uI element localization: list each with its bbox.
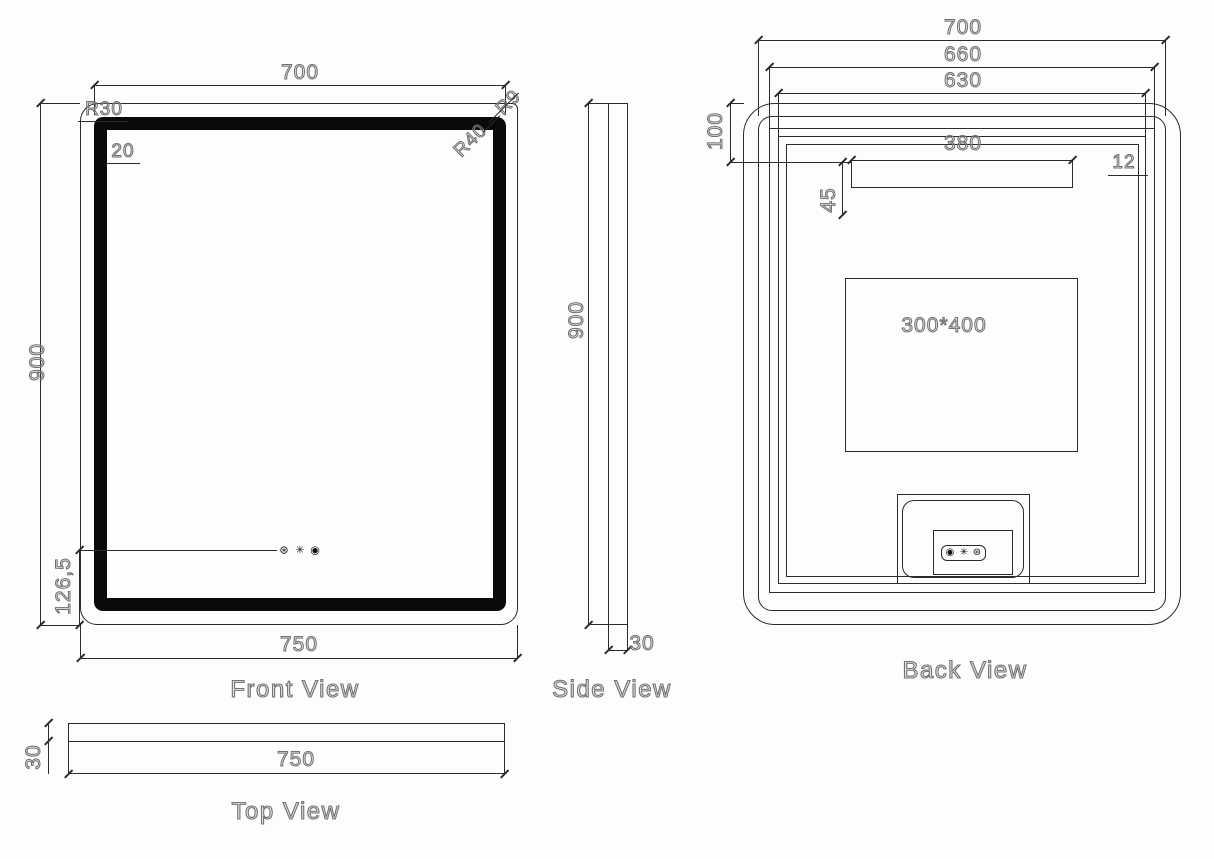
front-button-offset-dim: 126,5 (52, 557, 76, 615)
front-border-width-dim: 20 (111, 141, 134, 163)
dimension-line (80, 658, 518, 659)
dimension-line (48, 723, 49, 774)
hanging-bracket-strip (851, 160, 1073, 188)
top-glass-split-line (68, 741, 505, 742)
dimension-line (769, 67, 1155, 68)
light-connector-icon: ⊛ (973, 548, 981, 558)
front-bottom-width-dim: 750 (280, 633, 318, 657)
leader-line (1108, 175, 1148, 176)
front-top-width-dim: 700 (281, 61, 319, 85)
dimension-line (79, 550, 80, 625)
extension-line (778, 93, 779, 136)
dimension-line (842, 162, 843, 215)
top-width-dim: 750 (277, 748, 315, 772)
top-view-label: Top View (232, 798, 341, 826)
edge-gap-dim: 12 (1112, 152, 1135, 174)
front-radius-outer-note: R30 (85, 99, 123, 121)
top-thickness-dim: 30 (22, 744, 46, 769)
extension-line (730, 103, 744, 104)
light-toggle-icon[interactable]: ⊛ (279, 546, 288, 557)
bracket-width-dim: 380 (944, 132, 982, 156)
defog-connector-icon: ✳ (960, 548, 968, 558)
side-view-label: Side View (552, 676, 672, 704)
extension-line (1145, 93, 1146, 136)
power-connector-icon: ◉ (946, 548, 955, 558)
extension-line (80, 625, 81, 658)
technical-drawing-canvas: 700 R30 R9 R40 20 900 ⊛ ✳ ◉ 126,5 (0, 0, 1214, 859)
leader-line (79, 550, 277, 551)
dimension-line (94, 85, 506, 86)
extension-line (769, 67, 770, 128)
dimension-line (778, 93, 1146, 94)
extension-line (40, 625, 80, 626)
back-top-offset-dim: 100 (704, 112, 728, 150)
back-view-label: Back View (902, 657, 1027, 685)
extension-line (1154, 67, 1155, 128)
bracket-offset-dim: 45 (817, 187, 841, 212)
front-led-frame (94, 117, 506, 611)
side-height-dim: 900 (565, 301, 589, 339)
demister-pad (845, 278, 1078, 452)
leader-line (106, 163, 140, 164)
front-height-dim: 900 (26, 343, 50, 381)
back-width-660-dim: 660 (944, 43, 982, 67)
front-view-label: Front View (230, 676, 359, 704)
demister-size-label: 300*400 (901, 314, 986, 338)
leader-line (78, 121, 128, 122)
dimension-line (758, 40, 1166, 41)
dimension-line (730, 103, 731, 162)
side-glass-split-line (608, 103, 609, 625)
side-thickness-dim: 30 (629, 632, 654, 656)
defog-toggle-icon[interactable]: ✳ (295, 546, 304, 557)
extension-line (758, 40, 759, 116)
extension-line (517, 625, 518, 658)
extension-line (40, 103, 80, 104)
back-width-630-dim: 630 (944, 69, 982, 93)
back-width-700-dim: 700 (944, 16, 982, 40)
power-toggle-icon[interactable]: ◉ (310, 546, 320, 557)
extension-line (730, 162, 851, 163)
extension-line (1165, 40, 1166, 116)
